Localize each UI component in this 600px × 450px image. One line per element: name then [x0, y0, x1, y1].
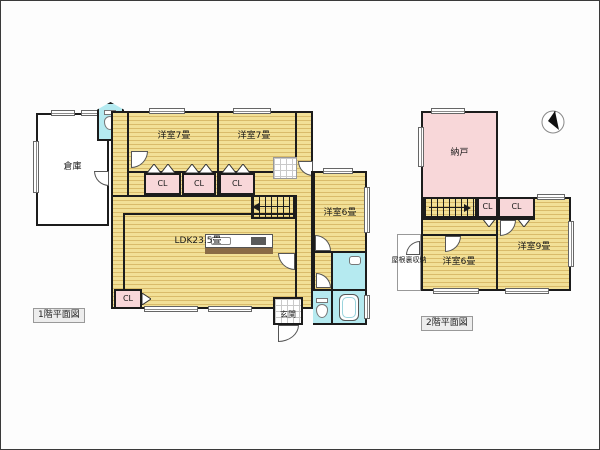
window-marker	[431, 108, 465, 114]
floor2-caption: 2階平面図	[421, 316, 473, 331]
floor-plan-image: 倉庫 洋室7畳 洋室7畳 CL CL CL LDK23.5畳 CL 洋室6畳 玄…	[0, 0, 600, 450]
window-marker	[537, 194, 565, 200]
closet-label: CL	[498, 203, 535, 212]
room-label-bedroom-a2: 洋室6畳	[421, 258, 497, 268]
floor2-plan: 納戸 CL CL 屋根裏収納 洋室6畳 洋室9畳 2階平面図	[1, 1, 599, 449]
room-label-nando: 納戸	[421, 149, 498, 159]
window-marker	[433, 288, 479, 294]
stairs-arrow-head	[464, 204, 471, 212]
window-marker	[418, 127, 424, 167]
room-label-bedroom-b2: 洋室9畳	[498, 243, 570, 253]
north-arrow-icon	[540, 109, 566, 135]
wall	[421, 218, 535, 220]
window-marker	[505, 288, 549, 294]
closet-label: CL	[477, 203, 498, 212]
stairs-arrow	[429, 207, 465, 208]
